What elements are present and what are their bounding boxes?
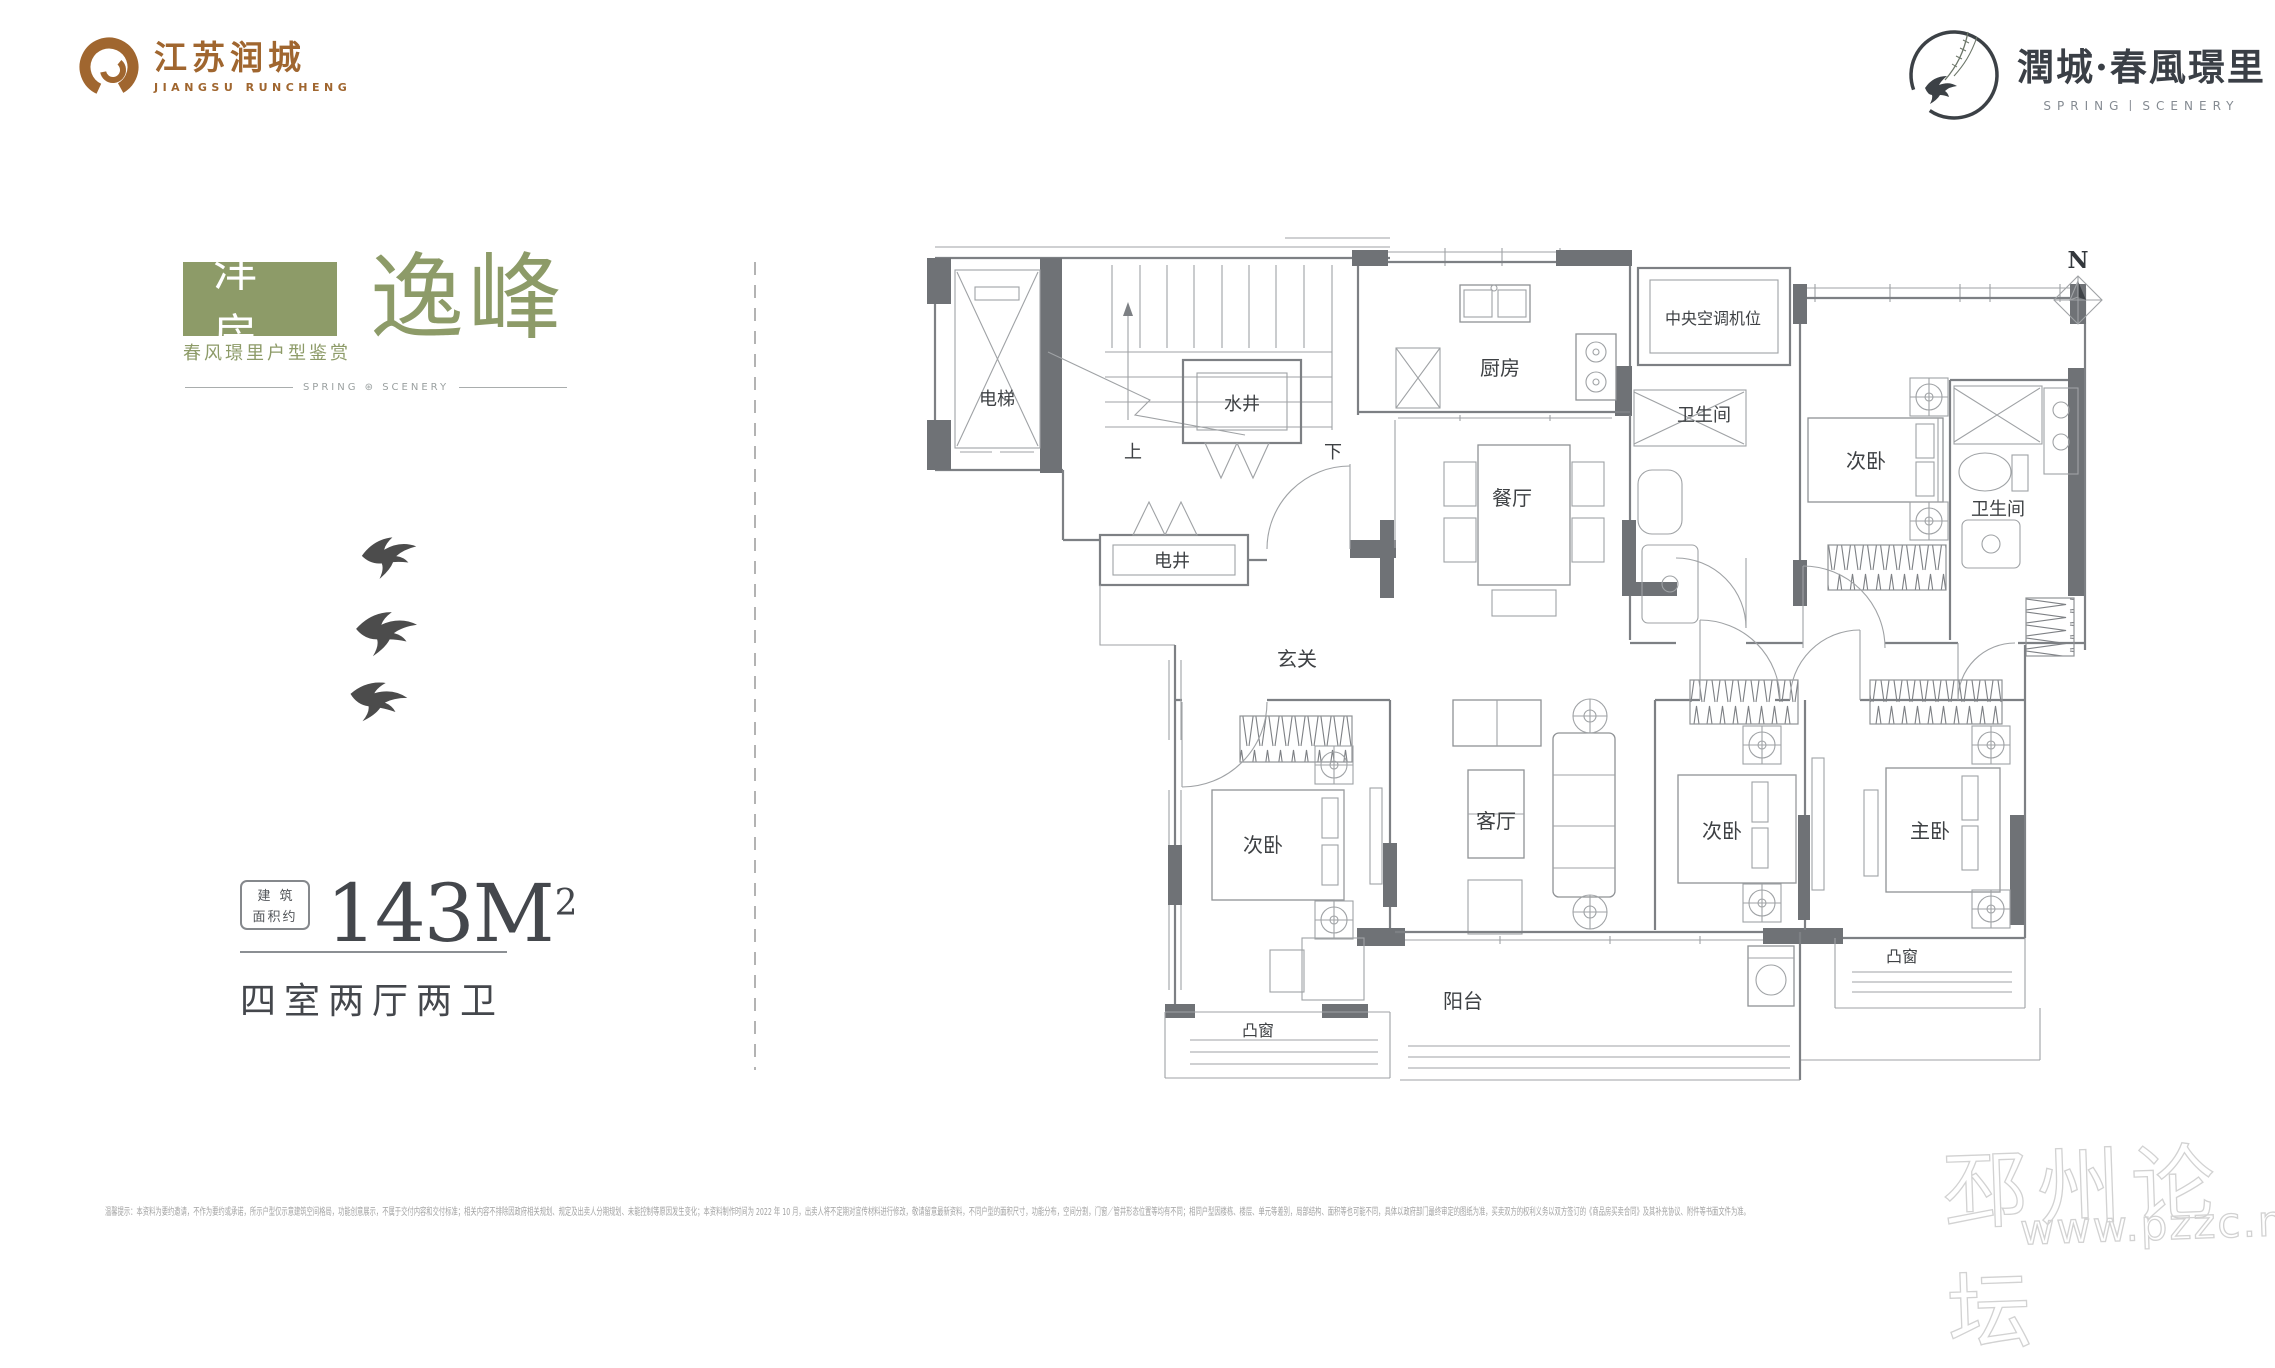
compass-n: N <box>2067 247 2088 274</box>
kitchen-stove <box>1576 334 1616 400</box>
sw-desk <box>1302 938 1364 1000</box>
brand-left-name-en: JIANGSU RUNCHENG <box>154 81 351 94</box>
swallow-birds-icon <box>330 528 450 743</box>
area-label-box: 建筑 面积约 <box>240 880 310 930</box>
layout-spec: 四室两厅两卫 <box>240 972 504 1024</box>
toilet-1 <box>1638 470 1682 534</box>
room-label-bay-window-sw: 凸窗 <box>1242 1021 1274 1040</box>
room-label-foyer: 玄关 <box>1277 647 1317 671</box>
area-label-line2: 面积约 <box>252 906 297 925</box>
divider-line-left <box>185 387 293 388</box>
master-wardrobe <box>1870 680 2002 724</box>
bathroom-1 <box>1622 390 1746 640</box>
room-label-living: 客厅 <box>1476 809 1516 833</box>
page-subtitle: 春风璟里户型鉴赏 <box>183 339 351 365</box>
bath1-door-arc <box>1676 558 1746 628</box>
toilet-2 <box>1959 453 2011 491</box>
divider-line-right <box>459 387 567 388</box>
sofa <box>1553 733 1615 897</box>
brand-left: 江苏润城 JIANGSU RUNCHENG <box>76 34 351 100</box>
room-label-balcony: 阳台 <box>1443 989 1483 1013</box>
sw-bedroom <box>1165 645 1405 1078</box>
foyer <box>1182 702 1352 787</box>
entry-door-arc <box>1267 466 1350 549</box>
room-label-water-shaft: 水井 <box>1224 394 1260 415</box>
room-label-bedroom-s: 次卧 <box>1702 819 1742 843</box>
area-superscript: 2 <box>555 883 576 924</box>
tv <box>1370 788 1382 884</box>
product-type-badge: 洋房 <box>183 262 337 336</box>
room-label-master-bedroom: 主卧 <box>1910 819 1950 843</box>
runcheng-swirl-logo-icon <box>76 34 142 100</box>
brand-right-name: 潤城·春風璟里 <box>2017 37 2266 91</box>
dining-table <box>1478 445 1570 585</box>
area-value: 143M2 <box>326 880 576 948</box>
compass-icon: N <box>2054 247 2102 324</box>
area-label-line1: 建筑 <box>248 885 301 904</box>
electric-shaft-entry <box>1063 464 1396 645</box>
ne-block <box>1793 284 2086 700</box>
area-underline <box>240 951 507 953</box>
spring-scenery-divider: SPRING ⊛ SCENERY <box>185 382 567 393</box>
disclaimer-text: 温馨提示：本资料为要约邀请，不作为要约或承诺，所示户型仅示意建筑空间格局，功能创… <box>105 1203 1750 1218</box>
room-label-kitchen: 厨房 <box>1480 356 1520 380</box>
watermark-forum: 邳州论坛 <box>1941 1114 2275 1367</box>
s-wardrobe <box>1690 680 1798 724</box>
room-label-electric-shaft: 电井 <box>1154 551 1190 572</box>
corridor-closet <box>2026 598 2074 656</box>
room-label-ac-unit: 中央空调机位 <box>1665 309 1761 328</box>
washing-machine <box>1748 946 1794 1006</box>
stair-up-label: 上 <box>1124 442 1142 463</box>
stair-down-label: 下 <box>1324 442 1342 463</box>
room-label-dining: 餐厅 <box>1492 486 1532 510</box>
room-label-bedroom-ne: 次卧 <box>1846 449 1886 473</box>
vertical-dashed-divider <box>754 262 756 1070</box>
room-label-elevator: 电梯 <box>979 389 1015 410</box>
brand-right-name-en: SPRING丨SCENERY <box>2043 97 2239 114</box>
foyer-closet <box>1240 716 1352 762</box>
floor-plan: N 电梯 水井 上 下 厨房 中央空调机位 卫生间 次卧 卫生间 餐厅 电井 玄… <box>880 230 2130 1100</box>
ne-wardrobe <box>1828 545 1946 590</box>
room-label-bath-2: 卫生间 <box>1971 499 2025 520</box>
spring-scenery-ink-logo-icon <box>1905 26 2003 124</box>
area-row: 建筑 面积约 143M2 <box>240 880 576 948</box>
vanity-2 <box>1962 520 2020 568</box>
divider-text: SPRING ⊛ SCENERY <box>303 382 449 393</box>
watermark-url: www.pzzc.net <box>2019 1195 2275 1255</box>
brand-right: 潤城·春風璟里 SPRING丨SCENERY <box>1905 26 2266 124</box>
side-table <box>1468 880 1522 934</box>
master-bedroom <box>1790 630 2040 1060</box>
brand-left-name: 江苏润城 <box>154 40 351 76</box>
room-label-bay-window-se: 凸窗 <box>1886 947 1918 966</box>
room-label-bedroom-sw: 次卧 <box>1243 833 1283 857</box>
kitchen-dining <box>1352 248 1632 616</box>
page-title: 逸峰 <box>370 252 566 346</box>
room-label-bath-1: 卫生间 <box>1677 405 1731 426</box>
master-door-arc <box>1790 630 1860 700</box>
